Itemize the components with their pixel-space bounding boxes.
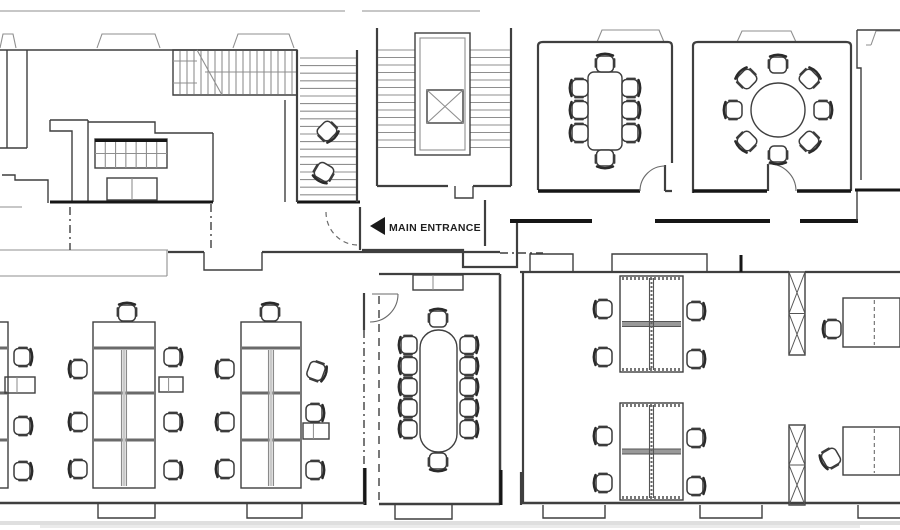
- cabinet-outline: [159, 377, 183, 392]
- chair: [570, 79, 588, 98]
- floor-plan-page: MAIN ENTRANCE: [0, 0, 900, 530]
- chair-seat: [14, 463, 30, 480]
- chair: [622, 79, 640, 98]
- corridor-left-lines: [0, 207, 168, 276]
- chair: [733, 65, 759, 91]
- chair: [460, 357, 478, 376]
- meeting-room-rect-door-arc: [640, 166, 665, 191]
- chair: [594, 300, 612, 319]
- chair-seat: [164, 349, 180, 366]
- desk-bank: [93, 322, 155, 488]
- chair-back: [597, 167, 613, 169]
- chair-seat: [401, 358, 417, 375]
- chair-seat: [596, 428, 612, 445]
- chair-back: [430, 470, 446, 472]
- chair-back: [477, 358, 479, 374]
- chair-seat: [460, 358, 476, 375]
- chair-back: [570, 125, 572, 141]
- chair: [724, 101, 742, 120]
- boardroom-door-arc: [370, 294, 398, 322]
- chair-back: [704, 303, 706, 319]
- chair-seat: [814, 102, 830, 119]
- chair-back: [770, 163, 786, 165]
- chair-seat: [218, 461, 234, 478]
- chair-back: [262, 303, 278, 305]
- chair: [596, 54, 615, 72]
- chair-seat: [825, 321, 841, 338]
- chair-back: [181, 462, 183, 478]
- meeting-room-round-door-arc: [768, 164, 796, 191]
- chair-seat: [460, 400, 476, 417]
- chair: [687, 350, 705, 369]
- chair-back: [31, 463, 33, 479]
- chair-seat: [401, 337, 417, 354]
- chair-seat: [14, 349, 30, 366]
- chair-seat: [687, 430, 703, 447]
- chair: [817, 446, 842, 472]
- chair: [769, 55, 788, 73]
- chair-back: [69, 361, 71, 377]
- chair-seat: [770, 57, 787, 73]
- chair-back: [181, 349, 183, 365]
- chair: [769, 146, 788, 164]
- chair: [69, 413, 87, 432]
- chair-seat: [164, 462, 180, 479]
- cabinet-outline: [413, 275, 463, 290]
- chair: [216, 360, 234, 379]
- chair-seat: [687, 303, 703, 320]
- chair-back: [704, 430, 706, 446]
- entrance-label: MAIN ENTRANCE: [389, 222, 481, 234]
- chair-seat: [596, 475, 612, 492]
- chair-seat: [597, 150, 614, 166]
- chair: [797, 65, 823, 91]
- desk-bank: [0, 322, 8, 488]
- chair: [622, 124, 640, 143]
- chair: [429, 453, 448, 471]
- chair-back: [477, 379, 479, 395]
- chair-back: [570, 102, 572, 118]
- chair: [797, 129, 823, 155]
- meeting-table-rect: [588, 72, 622, 150]
- chair-seat: [797, 67, 820, 90]
- chair-seat: [401, 421, 417, 438]
- chair: [594, 427, 612, 446]
- chair-back: [594, 428, 596, 444]
- chair: [69, 360, 87, 379]
- chair-seat: [430, 453, 447, 469]
- cabinet-outline: [303, 423, 329, 439]
- chair-seat: [315, 119, 338, 142]
- chair-back: [831, 102, 833, 118]
- chair-back: [477, 337, 479, 353]
- chair-back: [430, 309, 446, 311]
- scan-shadow: [0, 521, 900, 525]
- chair-back: [399, 358, 401, 374]
- right-edge-room-walls: [857, 30, 900, 221]
- desk-bank-dividers: [0, 348, 7, 440]
- column-x-bracing-icon: [789, 272, 805, 355]
- column-x-bracing-icon: [789, 425, 805, 505]
- chair: [164, 413, 182, 432]
- chair-back: [216, 361, 218, 377]
- chair-seat: [218, 414, 234, 431]
- chair-back: [31, 349, 33, 365]
- chair-back: [639, 80, 641, 96]
- cabinet-outline: [5, 377, 35, 393]
- chair: [164, 348, 182, 367]
- cabinet: [413, 275, 463, 290]
- chair-seat: [401, 400, 417, 417]
- chair-back: [477, 421, 479, 437]
- right-office-wall-bumps: [530, 254, 707, 272]
- chair: [261, 303, 280, 321]
- chair-back: [69, 461, 71, 477]
- single-desk-outline: [843, 298, 900, 347]
- desk-bank: [241, 322, 301, 488]
- entrance-arrow-icon: [370, 217, 385, 235]
- chair: [216, 413, 234, 432]
- chair-back: [181, 414, 183, 430]
- chair: [69, 460, 87, 479]
- chair-seat: [164, 414, 180, 431]
- stairwell-door-frame: [455, 186, 473, 198]
- chair-back: [770, 55, 786, 57]
- chair: [460, 420, 478, 439]
- chair: [823, 320, 841, 339]
- chair-back: [724, 102, 726, 118]
- chair-back: [570, 80, 572, 96]
- elevator-shaft: [415, 33, 470, 155]
- single-desk: [843, 427, 900, 475]
- chair: [570, 124, 588, 143]
- chair-seat: [119, 305, 136, 321]
- chair-back: [594, 301, 596, 317]
- chair: [14, 417, 32, 436]
- chair-seat: [430, 311, 447, 327]
- chair: [460, 378, 478, 397]
- shelving-grid: [95, 139, 167, 168]
- single-desk-outline: [843, 427, 900, 475]
- chair: [814, 101, 832, 120]
- chair: [399, 336, 417, 355]
- scan-artifacts: [0, 521, 900, 528]
- chair-back: [399, 421, 401, 437]
- chair-back: [69, 414, 71, 430]
- wall-dark-stubs: [365, 255, 741, 505]
- chair-seat: [797, 129, 820, 152]
- chair-seat: [770, 146, 787, 162]
- chair-seat: [306, 405, 322, 422]
- chair-seat: [218, 361, 234, 378]
- entrance-door-arc: [326, 212, 357, 245]
- chair: [570, 101, 588, 120]
- quad-desk-cluster: [620, 403, 683, 500]
- chair-seat: [14, 418, 30, 435]
- entrance-callout: MAIN ENTRANCE: [370, 217, 481, 235]
- boardroom-table: [420, 330, 457, 452]
- chair-seat: [71, 461, 87, 478]
- chair-back: [597, 54, 613, 56]
- left-rooms-walls: [0, 50, 297, 203]
- chair-back: [323, 405, 325, 421]
- chair-seat: [306, 462, 322, 479]
- chair-seat: [71, 361, 87, 378]
- chair-seat: [622, 125, 638, 142]
- chair: [460, 399, 478, 418]
- walls-structure: [0, 11, 900, 519]
- structural-column: [789, 425, 805, 505]
- chair: [306, 461, 324, 480]
- cabinet: [159, 377, 183, 392]
- chair: [460, 336, 478, 355]
- chair-seat: [687, 351, 703, 368]
- cabinet: [303, 423, 329, 439]
- chair-back: [639, 102, 641, 118]
- chair-seat: [726, 102, 742, 119]
- chair-seat: [735, 129, 758, 152]
- chair-back: [399, 400, 401, 416]
- single-desk: [843, 298, 900, 347]
- chair-seat: [622, 80, 638, 97]
- chair: [687, 477, 705, 496]
- chair-back: [31, 418, 33, 434]
- chair-seat: [572, 80, 588, 97]
- chair-back: [704, 478, 706, 494]
- furniture-layer: [0, 33, 900, 505]
- chair-seat: [735, 67, 758, 90]
- corridor-wall-bump: [204, 252, 262, 270]
- chair-back: [639, 125, 641, 141]
- quad-desk-cluster: [620, 276, 683, 372]
- chair-seat: [460, 421, 476, 438]
- chair-back: [399, 379, 401, 395]
- chair: [399, 357, 417, 376]
- chair: [596, 150, 615, 168]
- chair-back: [216, 414, 218, 430]
- chair-seat: [401, 379, 417, 396]
- chair-back: [823, 321, 825, 337]
- chair: [594, 348, 612, 367]
- chair-seat: [687, 478, 703, 495]
- chair: [216, 460, 234, 479]
- chair: [399, 399, 417, 418]
- chair-seat: [262, 305, 279, 321]
- chair-seat: [460, 337, 476, 354]
- floor-plan-drawing: MAIN ENTRANCE: [0, 0, 900, 530]
- chair-seat: [460, 379, 476, 396]
- chair-seat: [622, 102, 638, 119]
- chair: [14, 462, 32, 481]
- chair: [305, 359, 329, 383]
- chair: [118, 303, 137, 321]
- chair: [14, 348, 32, 367]
- chair-seat: [596, 301, 612, 318]
- chair-back: [594, 475, 596, 491]
- chair: [399, 378, 417, 397]
- chair: [687, 302, 705, 321]
- chair-back: [477, 400, 479, 416]
- chair-seat: [71, 414, 87, 431]
- bottom-window-bumps: [98, 503, 900, 519]
- chair-back: [323, 462, 325, 478]
- chair-seat: [596, 349, 612, 366]
- chair: [594, 474, 612, 493]
- chair-back: [216, 461, 218, 477]
- chair-seat: [572, 125, 588, 142]
- chair: [164, 461, 182, 480]
- chair-back: [704, 351, 706, 367]
- chair-seat: [597, 56, 614, 72]
- structural-column: [789, 272, 805, 355]
- chair: [306, 404, 324, 423]
- chair-back: [119, 303, 135, 305]
- chair: [429, 309, 448, 327]
- chair: [622, 101, 640, 120]
- chair-back: [399, 337, 401, 353]
- stairwell-treads: [378, 50, 510, 148]
- chair: [733, 129, 759, 155]
- chair: [687, 429, 705, 448]
- cabinet: [5, 377, 35, 393]
- chair-back: [594, 349, 596, 365]
- chair: [399, 420, 417, 439]
- scan-shadow: [40, 525, 860, 528]
- chair-seat: [572, 102, 588, 119]
- meeting-table-round: [751, 83, 805, 137]
- chair: [315, 119, 341, 145]
- elevator-cab-cross-icon: [427, 90, 463, 123]
